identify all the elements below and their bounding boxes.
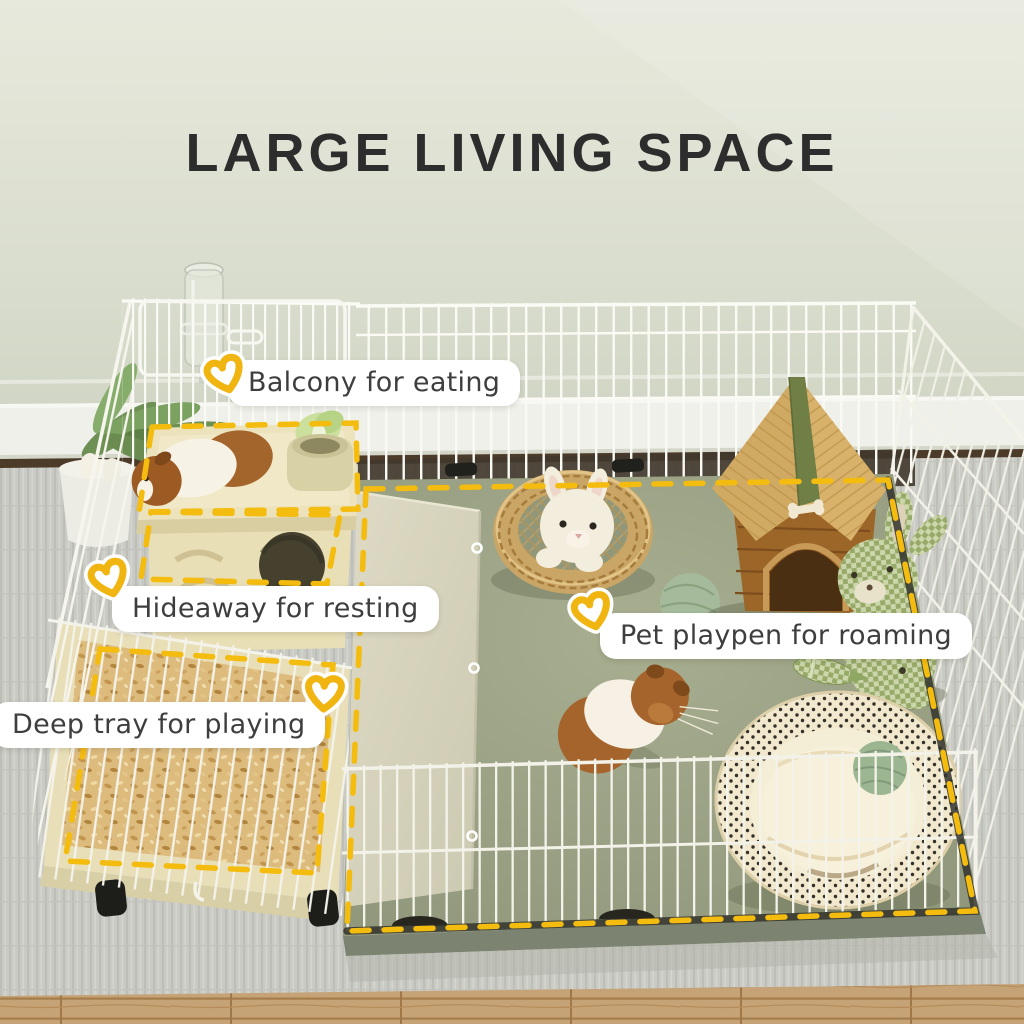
label-deep-tray: Deep tray for playing	[0, 702, 325, 748]
label-balcony: Balcony for eating	[228, 360, 520, 406]
label-hideaway-text: Hideaway for resting	[132, 593, 419, 624]
heart-doodle-icon	[297, 668, 354, 721]
label-playpen-text: Pet playpen for roaming	[620, 620, 952, 651]
label-playpen: Pet playpen for roaming	[600, 613, 972, 659]
label-balcony-text: Balcony for eating	[248, 367, 500, 398]
product-marketing-image: LARGE LIVING SPACE Balcony for eating Hi…	[0, 0, 1024, 1024]
headline: LARGE LIVING SPACE	[0, 122, 1024, 184]
label-deep-tray-text: Deep tray for playing	[12, 709, 305, 740]
label-hideaway: Hideaway for resting	[112, 586, 439, 632]
